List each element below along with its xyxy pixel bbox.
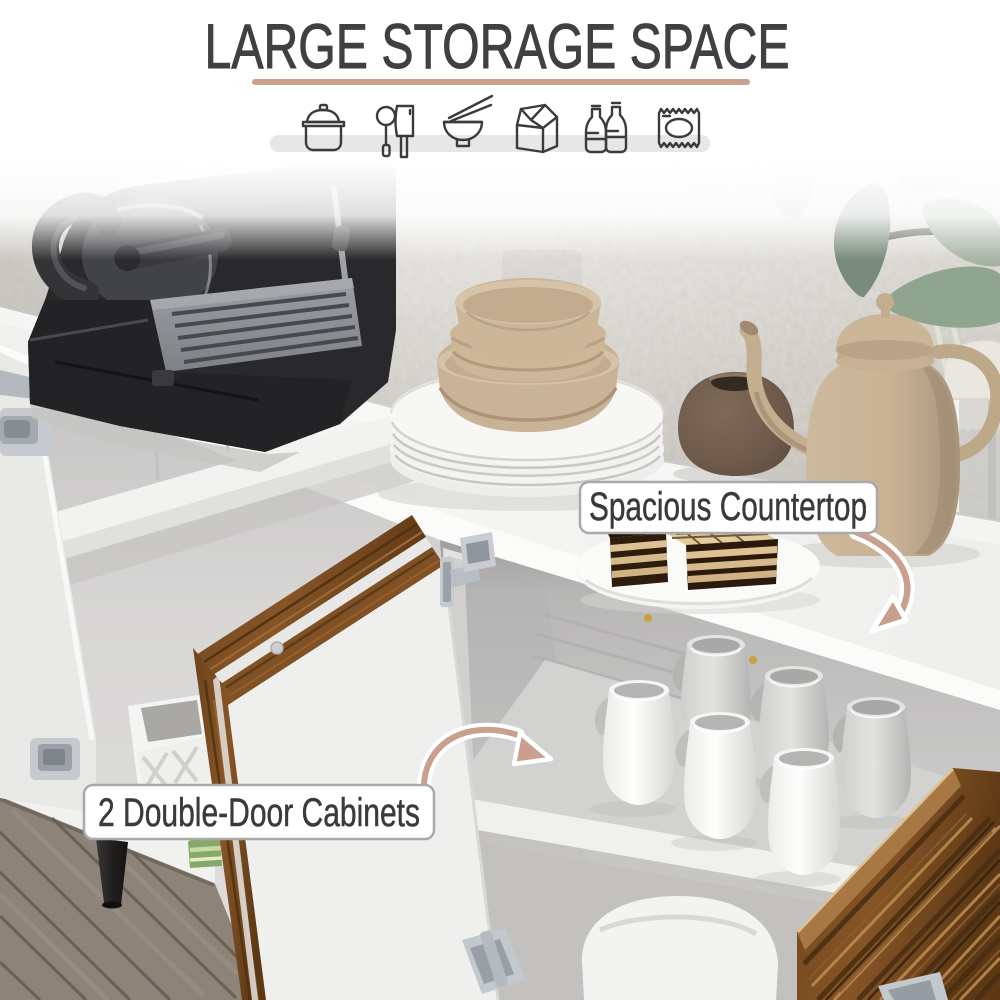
- svg-text:LARGE STORAGE SPACE: LARGE STORAGE SPACE: [205, 12, 790, 82]
- svg-text:2 Double-Door Cabinets: 2 Double-Door Cabinets: [98, 791, 420, 835]
- svg-text:Spacious Countertop: Spacious Countertop: [589, 485, 867, 529]
